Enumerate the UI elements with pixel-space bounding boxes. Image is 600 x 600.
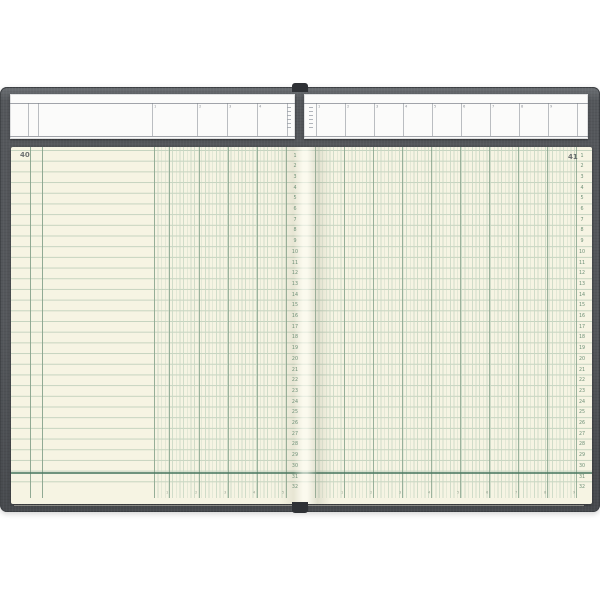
footer-tick: 6 (486, 491, 488, 495)
row-number: 11 (289, 260, 300, 265)
header-tick: 4 (259, 105, 261, 109)
header-column-line (577, 103, 578, 136)
row-number: 4 (576, 185, 587, 190)
row-number: 32 (289, 485, 300, 490)
row-number: 29 (289, 453, 300, 458)
row-number: 27 (576, 431, 587, 436)
header-bottom-rule (10, 136, 295, 137)
header-column-line (374, 103, 375, 136)
header-column-line (316, 103, 317, 136)
column-separator (460, 147, 461, 498)
margin-line (42, 147, 43, 498)
footer-tick: 1 (166, 491, 168, 495)
right-page-number: 41 (568, 154, 578, 161)
column-separator (431, 147, 432, 498)
column-separator (257, 147, 258, 498)
row-number: 24 (289, 399, 300, 404)
row-number: 15 (289, 303, 300, 308)
column-separator (199, 147, 200, 498)
row-number: 13 (576, 281, 587, 286)
row-number: 31 (576, 474, 587, 479)
header-tick: 9 (550, 105, 552, 109)
header-column-line (403, 103, 404, 136)
header-column-line (197, 103, 198, 136)
row-number: 12 (576, 271, 587, 276)
column-separator (154, 147, 155, 498)
horizontal-row-rules (11, 147, 592, 489)
spine-top-notch (292, 83, 308, 92)
header-tick: 2 (347, 105, 349, 109)
column-separator (315, 147, 316, 498)
header-column-line (548, 103, 549, 136)
header-column-line (490, 103, 491, 136)
row-number: 18 (289, 335, 300, 340)
row-number: 3 (289, 174, 300, 179)
row-number: 11 (576, 260, 587, 265)
row-number: 31 (289, 474, 300, 479)
row-number: 9 (576, 239, 587, 244)
header-bottom-rule (304, 136, 588, 137)
header-tick: 6 (463, 105, 465, 109)
row-number: 6 (576, 207, 587, 212)
column-separator (286, 147, 287, 498)
header-tick: 2 (199, 105, 201, 109)
header-tick: 1 (154, 105, 156, 109)
row-number: 21 (576, 367, 587, 372)
header-column-line (461, 103, 462, 136)
left-header-rotated-label (287, 107, 291, 128)
row-number: 16 (576, 314, 587, 319)
header-tick: 5 (434, 105, 436, 109)
row-number: 3 (576, 174, 587, 179)
header-tick: 8 (521, 105, 523, 109)
row-number: 24 (576, 399, 587, 404)
row-number: 18 (576, 335, 587, 340)
header-tick: 4 (405, 105, 407, 109)
row-number: 7 (576, 217, 587, 222)
column-separator (373, 147, 374, 498)
row-number: 19 (289, 346, 300, 351)
left-page-number: 40 (20, 152, 30, 159)
row-number: 2 (576, 164, 587, 169)
row-number: 29 (576, 453, 587, 458)
header-column-line (38, 103, 39, 136)
row-number: 2 (289, 164, 300, 169)
row-number: 26 (576, 421, 587, 426)
row-number: 9 (289, 239, 300, 244)
row-number: 15 (576, 303, 587, 308)
right-page-money-columns (315, 147, 576, 498)
row-number: 28 (576, 442, 587, 447)
row-number: 20 (289, 356, 300, 361)
row-number: 25 (289, 410, 300, 415)
right-header-rotated-label (309, 107, 313, 128)
column-separator (169, 147, 170, 498)
footer-tick: 4 (428, 491, 430, 495)
footer-tick: 8 (544, 491, 546, 495)
footer-tick: 5 (282, 491, 284, 495)
row-number: 7 (289, 217, 300, 222)
header-tick: 3 (229, 105, 231, 109)
left-page-money-columns (154, 147, 286, 498)
header-tick: 7 (492, 105, 494, 109)
row-number: 20 (576, 356, 587, 361)
row-number: 13 (289, 281, 300, 286)
column-separator (402, 147, 403, 498)
row-number: 8 (289, 228, 300, 233)
header-column-line (432, 103, 433, 136)
row-number: 1 (289, 153, 300, 158)
row-number: 6 (289, 207, 300, 212)
footer-tick: 4 (253, 491, 255, 495)
header-column-line (152, 103, 153, 136)
row-number: 25 (576, 410, 587, 415)
footer-tick: 7 (515, 491, 517, 495)
row-number: 10 (289, 249, 300, 254)
row-number: 12 (289, 271, 300, 276)
row-number: 30 (576, 463, 587, 468)
photo-background: 1234 123456789 1234567891011121314151617… (0, 0, 600, 600)
column-separator (344, 147, 345, 498)
row-number: 22 (289, 378, 300, 383)
row-number: 27 (289, 431, 300, 436)
row-number: 10 (576, 249, 587, 254)
total-rule (11, 472, 592, 474)
header-column-line (227, 103, 228, 136)
header-column-line (28, 103, 29, 136)
row-number: 17 (576, 324, 587, 329)
row-number: 26 (289, 421, 300, 426)
row-number: 32 (576, 485, 587, 490)
row-number: 1 (576, 153, 587, 158)
header-tick: 3 (376, 105, 378, 109)
ledger-page-spread: 1234567891011121314151617181920212223242… (11, 147, 592, 504)
row-number: 23 (289, 388, 300, 393)
left-header-strip: 1234 (10, 94, 295, 139)
row-number: 19 (576, 346, 587, 351)
row-number: 30 (289, 463, 300, 468)
footer-tick: 2 (370, 491, 372, 495)
footer-tick: 1 (341, 491, 343, 495)
row-number: 5 (576, 196, 587, 201)
row-number: 14 (289, 292, 300, 297)
margin-line (30, 147, 31, 498)
column-separator (518, 147, 519, 498)
row-number: 22 (576, 378, 587, 383)
footer-tick: 2 (195, 491, 197, 495)
spine-bottom-notch (292, 502, 308, 513)
row-number: 8 (576, 228, 587, 233)
footer-tick: 5 (457, 491, 459, 495)
header-column-line (345, 103, 346, 136)
header-tick: 1 (318, 105, 320, 109)
column-separator (489, 147, 490, 498)
row-number: 14 (576, 292, 587, 297)
footer-tick: 9 (573, 491, 575, 495)
row-number: 21 (289, 367, 300, 372)
column-separator (228, 147, 229, 498)
footer-tick: 3 (399, 491, 401, 495)
column-separator (547, 147, 548, 498)
header-column-line (257, 103, 258, 136)
row-number: 23 (576, 388, 587, 393)
footer-tick: 3 (224, 491, 226, 495)
row-number: 28 (289, 442, 300, 447)
row-number: 17 (289, 324, 300, 329)
row-number: 16 (289, 314, 300, 319)
right-header-strip: 123456789 (304, 94, 588, 139)
row-number: 5 (289, 196, 300, 201)
row-number: 4 (289, 185, 300, 190)
header-column-line (519, 103, 520, 136)
